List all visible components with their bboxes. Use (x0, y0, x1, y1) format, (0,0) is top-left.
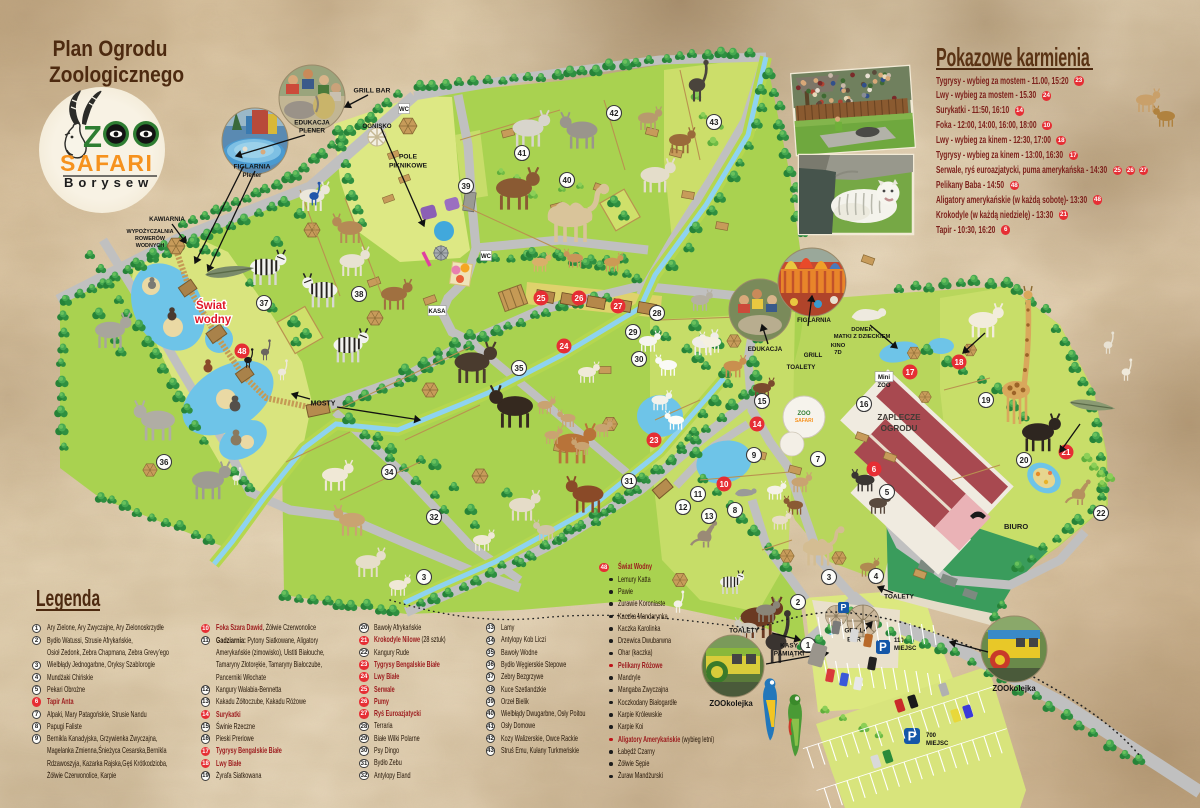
svg-text:WC: WC (481, 254, 492, 260)
svg-text:110: 110 (894, 638, 904, 644)
svg-text:31: 31 (625, 477, 634, 486)
svg-text:TOALETY: TOALETY (884, 593, 914, 600)
svg-text:WYPOŻYCZALNIA: WYPOŻYCZALNIA (126, 228, 173, 235)
svg-text:KASY: KASY (780, 642, 798, 649)
svg-text:14: 14 (753, 420, 762, 429)
svg-text:3: 3 (827, 573, 832, 582)
svg-text:ROWERÓW: ROWERÓW (135, 234, 166, 242)
svg-text:PAMIĄTKI: PAMIĄTKI (774, 650, 805, 657)
svg-text:BIURO: BIURO (1004, 522, 1028, 531)
svg-text:43: 43 (710, 118, 719, 127)
svg-text:19: 19 (982, 396, 991, 405)
svg-text:EDUKACJA: EDUKACJA (294, 119, 330, 126)
svg-text:8: 8 (733, 506, 738, 515)
svg-text:Borysew: Borysew (64, 175, 153, 190)
svg-text:23: 23 (650, 436, 659, 445)
svg-text:7: 7 (816, 455, 821, 464)
svg-text:FIGLARNIA: FIGLARNIA (233, 163, 270, 170)
svg-text:GRILL: GRILL (804, 352, 823, 359)
svg-text:wodny: wodny (194, 314, 232, 326)
svg-text:TOALETY: TOALETY (729, 627, 759, 634)
svg-text:MOSTY: MOSTY (311, 401, 336, 408)
svg-text:SAFARI: SAFARI (795, 418, 814, 424)
svg-text:WC: WC (399, 107, 410, 113)
svg-text:48: 48 (238, 347, 247, 356)
svg-text:1: 1 (806, 641, 811, 650)
svg-text:11: 11 (694, 490, 703, 499)
svg-text:41: 41 (518, 149, 527, 158)
svg-text:MIEJSC: MIEJSC (926, 741, 949, 747)
svg-text:32: 32 (430, 513, 439, 522)
svg-text:37: 37 (260, 299, 269, 308)
svg-text:P: P (840, 603, 846, 613)
svg-text:17: 17 (906, 368, 915, 377)
svg-text:MIEJSC: MIEJSC (894, 646, 917, 652)
svg-text:35: 35 (515, 364, 524, 373)
svg-text:6: 6 (872, 465, 877, 474)
svg-text:18: 18 (955, 358, 964, 367)
svg-text:10: 10 (720, 480, 729, 489)
svg-text:4: 4 (874, 572, 879, 581)
svg-text:26: 26 (575, 294, 584, 303)
svg-text:15: 15 (758, 397, 767, 406)
svg-text:P: P (879, 642, 887, 654)
svg-text:13: 13 (705, 512, 714, 521)
svg-text:28: 28 (653, 309, 662, 318)
svg-text:39: 39 (462, 182, 471, 191)
svg-text:DOMEK: DOMEK (851, 327, 873, 333)
svg-text:30: 30 (635, 355, 644, 364)
svg-text:29: 29 (629, 328, 638, 337)
svg-text:OGRODU: OGRODU (881, 424, 918, 433)
svg-text:ZOO: ZOO (798, 411, 811, 417)
svg-text:KAWIARNIA: KAWIARNIA (149, 216, 185, 223)
svg-text:PIKNIKOWE: PIKNIKOWE (389, 162, 428, 169)
svg-text:PLENER: PLENER (299, 127, 325, 134)
svg-text:20: 20 (1020, 456, 1029, 465)
svg-text:OGNISKO: OGNISKO (362, 123, 391, 130)
svg-text:SAFARI: SAFARI (60, 150, 153, 176)
svg-text:36: 36 (160, 458, 169, 467)
svg-text:WODNYCH: WODNYCH (136, 243, 165, 249)
svg-text:27: 27 (614, 302, 623, 311)
svg-text:42: 42 (610, 109, 619, 118)
svg-text:9: 9 (752, 451, 757, 460)
svg-text:FIGLARNIA: FIGLARNIA (797, 317, 831, 324)
svg-text:Mini: Mini (878, 375, 890, 381)
svg-text:ZOO: ZOO (878, 383, 891, 389)
svg-text:GRILL BAR: GRILL BAR (354, 87, 391, 94)
svg-text:40: 40 (563, 176, 572, 185)
svg-text:12: 12 (679, 503, 688, 512)
svg-text:16: 16 (860, 400, 869, 409)
svg-text:25: 25 (537, 294, 546, 303)
svg-text:22: 22 (1097, 509, 1106, 518)
svg-text:KINO: KINO (831, 343, 846, 349)
svg-text:ZOOkolejka: ZOOkolejka (992, 684, 1036, 693)
svg-text:700: 700 (926, 733, 937, 739)
svg-text:3: 3 (422, 573, 427, 582)
svg-text:POLE: POLE (399, 153, 418, 160)
svg-text:EDUKACJA: EDUKACJA (748, 346, 783, 353)
svg-text:TOALETY: TOALETY (787, 364, 817, 371)
svg-text:5: 5 (885, 488, 890, 497)
svg-text:ZAPLECZE: ZAPLECZE (877, 413, 921, 422)
svg-text:2: 2 (796, 598, 801, 607)
svg-text:Z: Z (83, 119, 102, 154)
svg-text:Świat: Świat (196, 299, 226, 312)
svg-text:24: 24 (560, 342, 569, 351)
svg-text:ZOOkolejka: ZOOkolejka (709, 699, 753, 708)
svg-text:KASA: KASA (428, 309, 446, 315)
svg-text:38: 38 (355, 290, 364, 299)
svg-text:34: 34 (385, 468, 394, 477)
svg-text:7D: 7D (834, 350, 841, 356)
